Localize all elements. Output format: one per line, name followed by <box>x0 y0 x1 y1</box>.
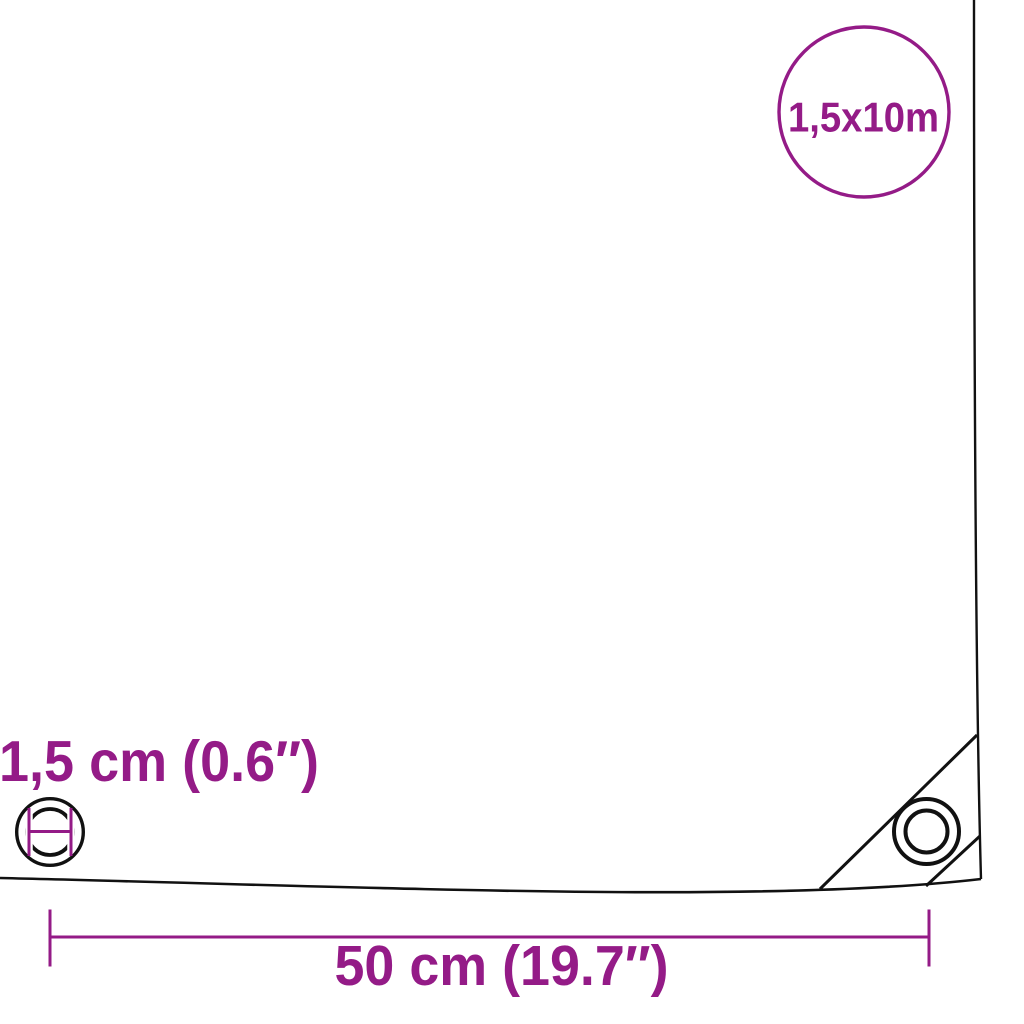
svg-text:50 cm (19.7″): 50 cm (19.7″) <box>335 934 669 998</box>
svg-text:1,5x10m: 1,5x10m <box>788 94 939 141</box>
svg-text:1,5 cm (0.6″): 1,5 cm (0.6″) <box>0 730 319 794</box>
